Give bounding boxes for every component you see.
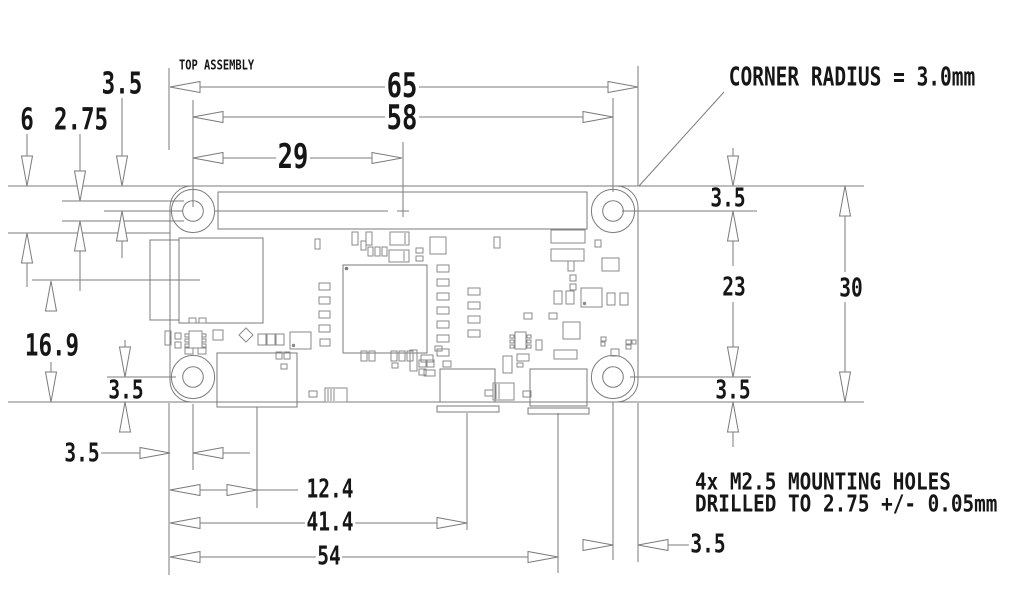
mounting-hole-bottom-left [171, 355, 214, 398]
dim-label-pad-diameter: 6 [19, 109, 36, 134]
dim-label-hole-inset-left: 3.5 [63, 443, 101, 464]
corner-radius-leader [639, 92, 724, 186]
dim-label-hole-inset-bottom-left-v: 3.5 [107, 380, 145, 401]
center-mark [215, 205, 409, 217]
drawing-canvas: TOP ASSEMBLY 65 58 29 3.5 6 2.75 16.9 3.… [0, 0, 1022, 594]
dim-label-board-width: 65 [385, 73, 419, 101]
mounting-hole-bottom-right [591, 355, 634, 398]
corner-radius-note: CORNER RADIUS = 3.0mm [727, 67, 977, 88]
dim-label-hole-span-vertical: 23 [721, 277, 747, 298]
dim-label-drill-diameter: 2.75 [52, 109, 109, 134]
view-title: TOP ASSEMBLY [179, 60, 254, 73]
dim-label-usb-power-centerline: 54 [316, 546, 342, 567]
dim-label-hole-span-horizontal: 58 [385, 105, 419, 133]
dim-label-usb-data-centerline: 41.4 [305, 512, 355, 533]
dim-label-hole-inset-top-left: 3.5 [100, 73, 144, 98]
dim-label-hole-inset-top-right: 3.5 [709, 188, 747, 209]
dim-label-hole-inset-right: 3.5 [689, 534, 727, 555]
dim-label-hole-to-center: 29 [276, 144, 310, 172]
dim-label-hdmi-centerline: 12.4 [305, 479, 355, 500]
smd-components [165, 230, 636, 402]
usb-power-connector [528, 369, 589, 414]
mounting-note-line2: DRILLED TO 2.75 +/- 0.05mm [695, 494, 997, 517]
dim-label-hole-inset-bottom-right-v: 3.5 [714, 380, 752, 401]
dim-label-sd-centerline: 16.9 [23, 335, 80, 360]
mini-hdmi-connector [217, 353, 297, 407]
soc-chip [343, 265, 427, 353]
mounting-holes [171, 189, 634, 398]
pcb-outline [170, 186, 638, 402]
dim-label-board-height: 30 [838, 278, 864, 299]
